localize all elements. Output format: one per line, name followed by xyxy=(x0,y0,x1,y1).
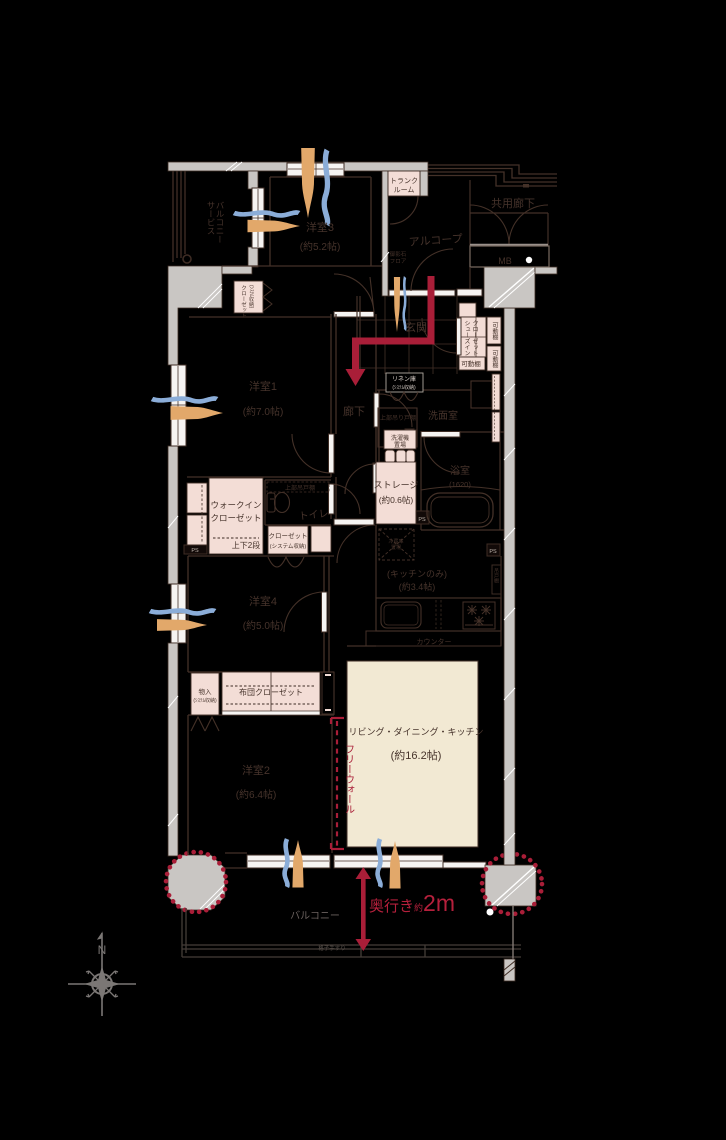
svg-text:クローゼット: クローゼット xyxy=(240,285,247,319)
svg-text:洋室4: 洋室4 xyxy=(249,594,277,608)
svg-text:御影石: 御影石 xyxy=(390,250,407,258)
svg-text:洋室3: 洋室3 xyxy=(306,220,334,234)
svg-text:上部吊戸棚: 上部吊戸棚 xyxy=(285,484,315,492)
svg-text:ストレージ: ストレージ xyxy=(374,480,419,490)
svg-text:置場: 置場 xyxy=(391,544,401,551)
svg-text:シューズイン: シューズイン xyxy=(463,320,470,356)
svg-text:PS: PS xyxy=(418,517,426,523)
svg-text:洗面室: 洗面室 xyxy=(428,409,458,422)
svg-text:共用廊下: 共用廊下 xyxy=(491,196,535,210)
svg-text:洗濯機: 洗濯機 xyxy=(391,434,409,442)
svg-text:トランク: トランク xyxy=(390,177,418,185)
svg-text:(約5.0帖): (約5.0帖) xyxy=(243,619,284,632)
svg-text:(システム収納): (システム収納) xyxy=(270,542,307,550)
svg-text:(約0.6帖): (約0.6帖) xyxy=(379,495,414,505)
svg-text:布団クローゼット: 布団クローゼット xyxy=(239,687,303,697)
svg-text:可動棚: 可動棚 xyxy=(491,350,498,369)
svg-text:クローゼット: クローゼット xyxy=(471,320,478,356)
svg-text:(約7.0帖): (約7.0帖) xyxy=(243,405,284,418)
svg-text:バルコニー: バルコニー xyxy=(215,201,225,244)
svg-text:(約5.2帖): (約5.2帖) xyxy=(300,240,341,253)
svg-text:N: N xyxy=(98,943,107,957)
svg-text:(1620): (1620) xyxy=(449,480,471,489)
svg-text:廊下: 廊下 xyxy=(343,404,365,418)
svg-text:(キッチンのみ): (キッチンのみ) xyxy=(387,569,447,579)
svg-text:(ｼｽﾃﾑ収納): (ｼｽﾃﾑ収納) xyxy=(392,384,416,391)
svg-text:洋室1: 洋室1 xyxy=(249,379,277,393)
svg-text:格子手すり: 格子手すり xyxy=(318,944,346,952)
svg-text:クローゼット: クローゼット xyxy=(269,531,308,540)
svg-text:カウンター: カウンター xyxy=(417,637,452,646)
svg-text:洋室2: 洋室2 xyxy=(242,763,270,777)
svg-text:ルーム: ルーム xyxy=(394,186,415,194)
svg-text:クローゼット: クローゼット xyxy=(210,513,261,523)
svg-text:可動棚: 可動棚 xyxy=(491,322,498,341)
svg-text:フリーウォール: フリーウォール xyxy=(343,744,355,814)
svg-text:(約16.2帖): (約16.2帖) xyxy=(391,748,442,762)
svg-text:(約6.4帖): (約6.4帖) xyxy=(236,788,277,801)
svg-text:物入: 物入 xyxy=(199,687,213,696)
svg-text:(ｼｽﾃﾑ収納): (ｼｽﾃﾑ収納) xyxy=(193,697,217,704)
svg-text:浴室: 浴室 xyxy=(450,464,470,477)
svg-text:可動棚: 可動棚 xyxy=(461,359,481,368)
svg-text:リビング・ダイニング・キッチン: リビング・ダイニング・キッチン xyxy=(348,726,483,737)
svg-text:MB: MB xyxy=(498,256,512,266)
svg-text:フロア: フロア xyxy=(390,258,407,265)
svg-text:PS: PS xyxy=(191,548,199,554)
svg-text:玄関: 玄関 xyxy=(405,320,427,334)
svg-text:リネン庫: リネン庫 xyxy=(392,375,416,383)
svg-text:上部吊り戸棚: 上部吊り戸棚 xyxy=(380,414,416,422)
svg-text:ウォークイン: ウォークイン xyxy=(210,500,261,510)
svg-text:置場: 置場 xyxy=(394,441,406,449)
svg-text:(ｼｽﾃﾑ収納): (ｼｽﾃﾑ収納) xyxy=(248,285,254,309)
svg-text:冷蔵庫: 冷蔵庫 xyxy=(388,538,403,545)
svg-text:バルコニー: バルコニー xyxy=(290,910,340,922)
svg-text:上下2段: 上下2段 xyxy=(232,540,260,550)
svg-text:吊戸棚: 吊戸棚 xyxy=(493,568,499,584)
svg-text:(約3.4帖): (約3.4帖) xyxy=(399,581,436,592)
svg-text:PS: PS xyxy=(489,549,497,555)
